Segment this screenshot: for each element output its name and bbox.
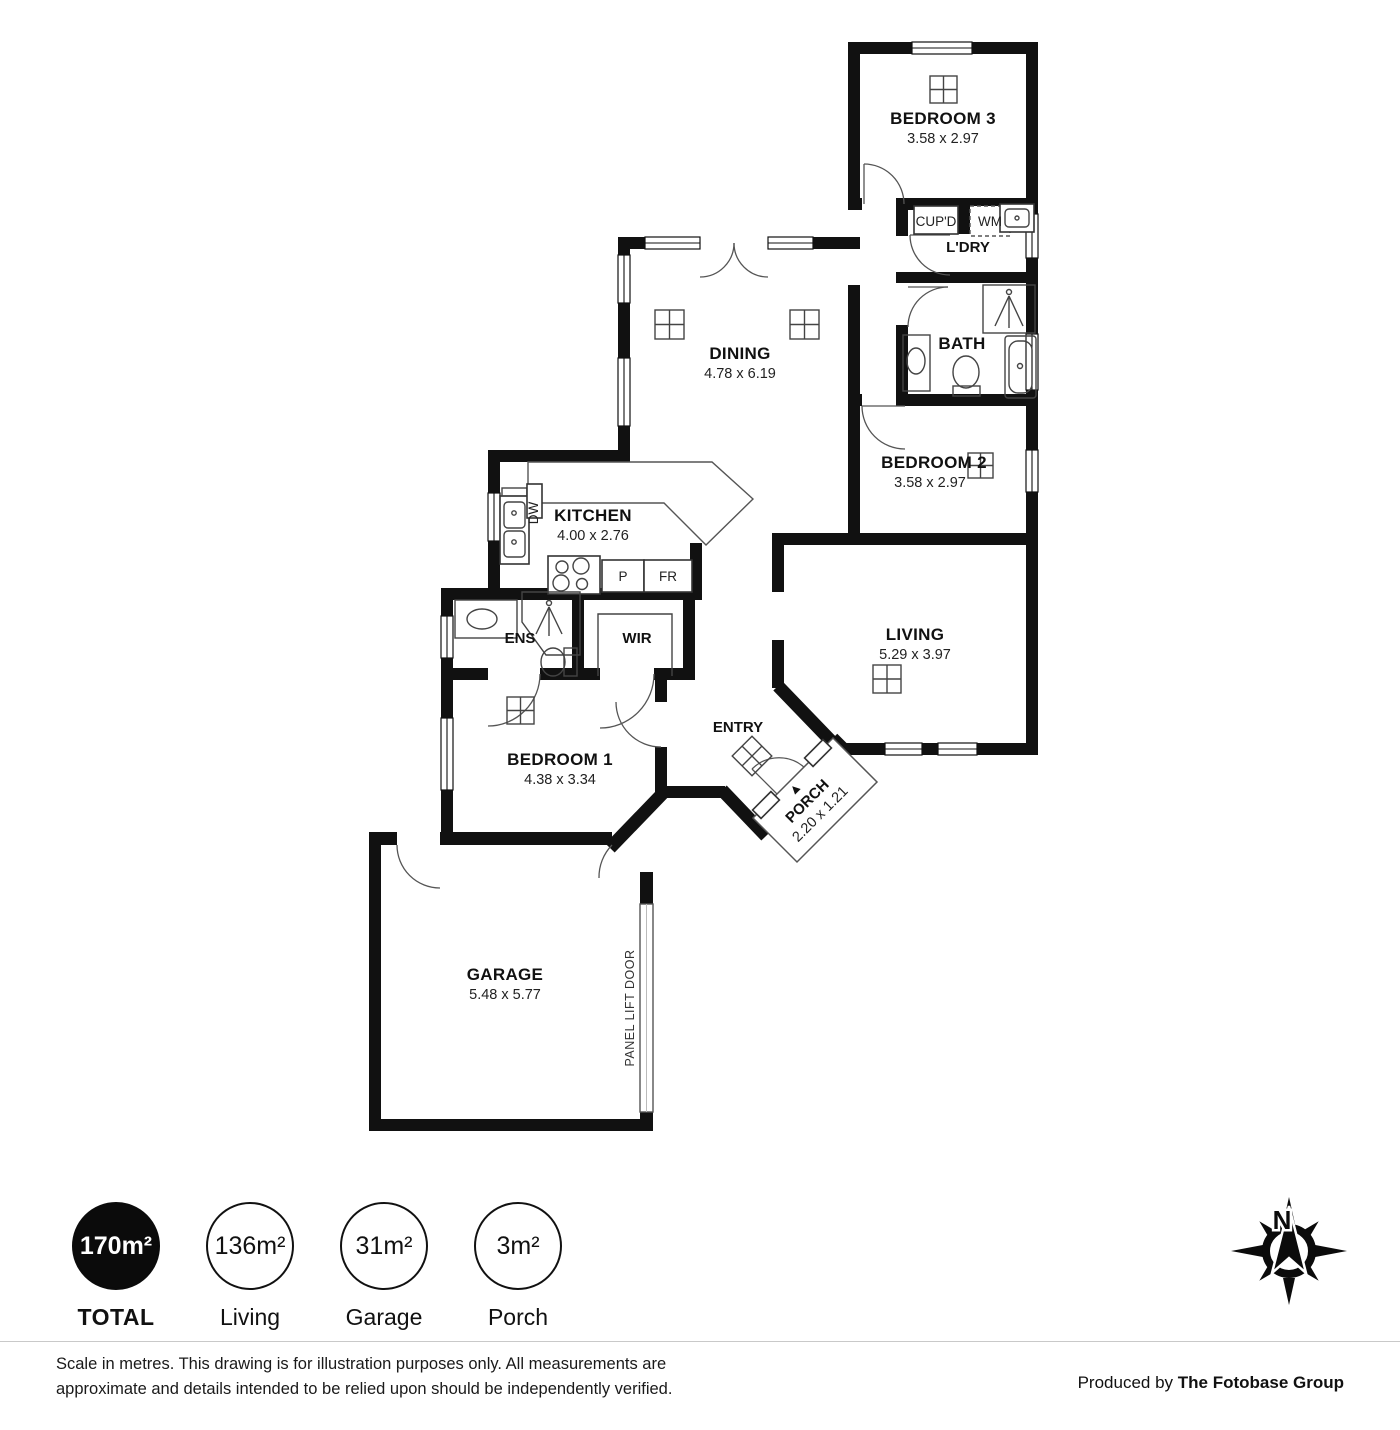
door-swing [910,235,950,275]
door-swing [734,243,768,277]
credit-name: The Fotobase Group [1178,1373,1344,1392]
door-swing [599,845,612,878]
room-label-fridge: FR [659,569,677,584]
stat-total-value: 170m² [72,1202,160,1290]
toilet-icon [953,356,980,396]
room-label-wir: WIR [622,630,651,647]
credit-text: Produced by The Fotobase Group [1078,1373,1344,1393]
door-swing [397,845,440,888]
window [488,493,500,541]
room-label-ens: ENS [505,630,536,647]
panel-lift-door [640,904,653,1112]
stat-porch-label: Porch [458,1304,578,1331]
stat-porch: 3m² Porch [458,1202,578,1331]
window [768,237,813,249]
room-label-bedroom1: BEDROOM 1 [507,750,613,769]
footer-divider [0,1341,1400,1342]
room-label-cupd: CUP'D [916,214,957,229]
door-swing [600,674,654,728]
cooktop-icon [548,556,600,594]
stat-living-label: Living [190,1304,310,1331]
door-swing [700,243,734,277]
room-label-bath: BATH [938,334,985,353]
door-swing [908,287,948,327]
room-label-living: LIVING [886,625,944,644]
windows [441,42,1038,790]
door-swing [862,406,905,449]
room-label-dw: DW [526,502,541,525]
ceiling-fan-icon [790,310,819,339]
disclaimer-line1: Scale in metres. This drawing is for ill… [56,1352,672,1377]
stat-living-value: 136m² [206,1202,294,1290]
room-label-bedroom2: BEDROOM 2 [881,453,987,472]
kitchen-sink-icon [500,488,529,564]
room-label-entry: ENTRY [713,719,763,736]
door-swing [488,674,540,726]
door-swing [616,702,661,747]
room-dims-dining: 4.78 x 6.19 [704,366,776,382]
stat-garage-value: 31m² [340,1202,428,1290]
room-labels: BEDROOM 3 3.58 x 2.97 CUP'D WM L'DRY BAT… [467,109,1002,1067]
bathtub-icon [1005,336,1036,398]
window [441,718,453,790]
stat-total: 170m² TOTAL [56,1202,176,1331]
window [912,42,972,54]
stat-garage-label: Garage [324,1304,444,1331]
room-dims-garage: 5.48 x 5.77 [469,987,541,1003]
room-dims-bedroom2: 3.58 x 2.97 [894,475,966,491]
room-dims-kitchen: 4.00 x 2.76 [557,528,629,544]
floor-plan: BEDROOM 3 3.58 x 2.97 CUP'D WM L'DRY BAT… [0,0,1400,1160]
stat-garage: 31m² Garage [324,1202,444,1331]
window [441,616,453,658]
stat-porch-value: 3m² [474,1202,562,1290]
compass-north-label: N [1273,1205,1292,1235]
room-label-pantry: P [618,569,627,584]
room-label-panel-lift-door: PANEL LIFT DOOR [623,949,637,1066]
room-label-kitchen: KITCHEN [554,506,632,525]
room-label-ldry: L'DRY [946,239,990,256]
laundry-sink-icon [1000,204,1034,232]
ceiling-fan-icon [655,310,684,339]
room-label-garage: GARAGE [467,965,543,984]
window [938,743,977,755]
compass-north-icon: N [1230,1190,1348,1313]
room-label-bedroom3: BEDROOM 3 [890,109,996,128]
stat-total-label: TOTAL [56,1304,176,1331]
room-label-wm: WM [978,214,1002,229]
window [645,237,700,249]
disclaimer-text: Scale in metres. This drawing is for ill… [56,1352,672,1402]
room-label-dining: DINING [709,344,770,363]
disclaimer-line2: approximate and details intended to be r… [56,1377,672,1402]
window [885,743,922,755]
credit-prefix: Produced by [1078,1373,1178,1392]
ceiling-fan-icon [507,697,534,724]
window [618,255,630,303]
room-dims-bedroom3: 3.58 x 2.97 [907,131,979,147]
window [618,358,630,426]
room-dims-bedroom1: 4.38 x 3.34 [524,772,596,788]
window [1026,450,1038,492]
room-dims-living: 5.29 x 3.97 [879,647,951,663]
ceiling-fan-icon [930,76,957,103]
stat-living: 136m² Living [190,1202,310,1331]
ceiling-fan-icon [873,665,901,693]
